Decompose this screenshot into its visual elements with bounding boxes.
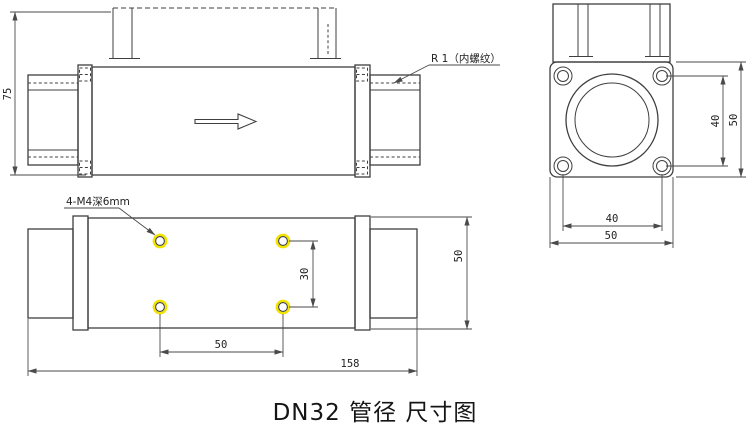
holes-label: 4-M4深6mm — [66, 196, 130, 208]
plan-view-body — [88, 218, 355, 328]
end-view: 40 50 40 50 — [550, 4, 746, 248]
dim-label-50-h: 50 — [605, 230, 618, 242]
side-view-left-flange — [78, 65, 92, 177]
dim-bolt-spacing-horizontal: 40 — [563, 174, 662, 231]
dim-label-75: 75 — [2, 88, 14, 101]
drawing-title: DN32 管径 尺寸图 — [0, 393, 750, 427]
dim-hole-spacing-horizontal: 50 — [160, 314, 283, 357]
side-view-right-pipe — [370, 75, 420, 165]
dim-label-40-v: 40 — [710, 115, 722, 128]
dim-hole-spacing-vertical: 30 — [289, 241, 318, 307]
end-view-top-bracket — [553, 4, 670, 62]
technical-drawing: 75 R 1（内螺纹） — [0, 0, 750, 428]
dim-label-40-h: 40 — [606, 213, 619, 225]
plan-view-left-flange — [73, 216, 88, 330]
plan-view-right-flange — [355, 216, 370, 330]
dim-label-30: 30 — [299, 268, 311, 281]
dim-label-50-v: 50 — [728, 114, 740, 127]
end-view-bore — [566, 74, 658, 166]
side-view-left-pipe — [28, 75, 78, 165]
plan-view-mounting-holes — [154, 235, 289, 313]
dim-label-50-width: 50 — [453, 250, 465, 263]
dim-bolt-spacing-vertical: 40 — [666, 76, 728, 166]
side-view: 75 R 1（内螺纹） — [2, 8, 501, 177]
plan-view-left-pipe — [28, 229, 73, 318]
dim-overall-height: 75 — [2, 12, 111, 175]
thread-callout: R 1（内螺纹） — [394, 52, 501, 83]
side-view-top-housing — [109, 8, 341, 59]
plan-view: 4-M4深6mm 30 50 — [28, 196, 472, 376]
dim-label-158: 158 — [341, 358, 360, 370]
plan-view-right-pipe — [370, 229, 417, 318]
end-view-flange — [550, 62, 673, 177]
side-view-right-flange — [355, 65, 370, 177]
thread-label: R 1（内螺纹） — [431, 52, 501, 65]
flow-direction-arrow-icon — [195, 114, 256, 129]
dim-body-width: 50 — [371, 217, 472, 329]
drawing-canvas: 75 R 1（内螺纹） — [0, 0, 750, 428]
dim-label-50-holes: 50 — [215, 339, 228, 351]
